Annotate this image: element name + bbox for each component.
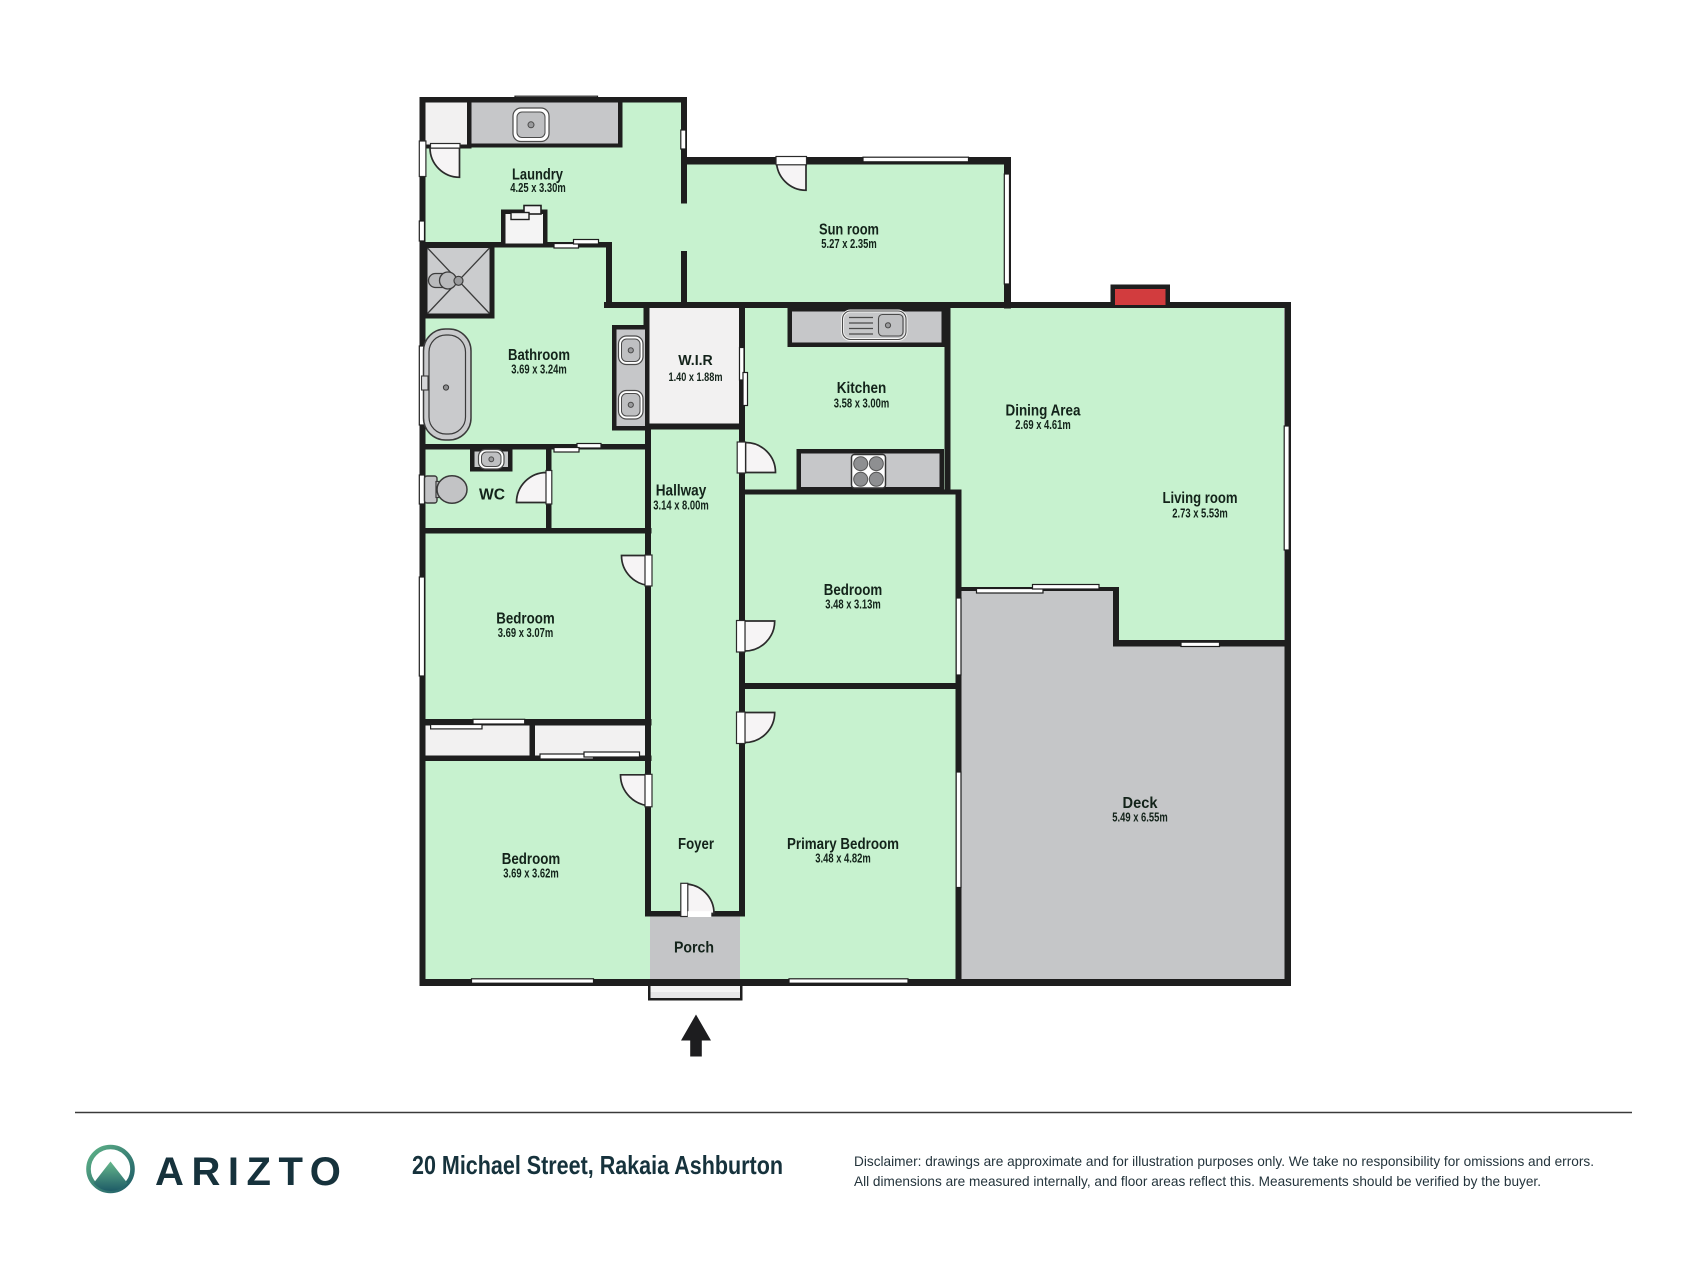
- svg-text:Porch: Porch: [674, 940, 714, 957]
- svg-text:Bathroom: Bathroom: [508, 347, 570, 364]
- svg-text:4.25 x 3.30m: 4.25 x 3.30m: [510, 181, 566, 195]
- svg-text:Sun room: Sun room: [819, 222, 879, 239]
- svg-text:Dining Area: Dining Area: [1006, 403, 1081, 420]
- svg-text:Bedroom: Bedroom: [502, 851, 561, 868]
- svg-text:Bedroom: Bedroom: [496, 611, 555, 628]
- svg-text:Foyer: Foyer: [678, 836, 714, 853]
- svg-text:ARIZTO: ARIZTO: [155, 1150, 349, 1194]
- svg-text:3.69 x 3.24m: 3.69 x 3.24m: [511, 363, 567, 377]
- svg-text:3.48 x 4.82m: 3.48 x 4.82m: [815, 852, 871, 866]
- svg-text:W.I.R: W.I.R: [678, 353, 713, 369]
- svg-text:Primary Bedroom: Primary Bedroom: [787, 836, 899, 853]
- svg-text:Bedroom: Bedroom: [824, 582, 883, 599]
- svg-text:Disclaimer: drawings are appro: Disclaimer: drawings are approximate and…: [854, 1153, 1594, 1169]
- svg-text:3.69 x 3.07m: 3.69 x 3.07m: [498, 626, 554, 640]
- svg-text:3.69 x 3.62m: 3.69 x 3.62m: [503, 867, 559, 881]
- svg-text:2.69 x 4.61m: 2.69 x 4.61m: [1015, 418, 1071, 432]
- svg-text:3.48 x 3.13m: 3.48 x 3.13m: [825, 598, 881, 612]
- svg-text:All dimensions are measured in: All dimensions are measured internally, …: [854, 1173, 1541, 1189]
- svg-text:5.27 x 2.35m: 5.27 x 2.35m: [821, 237, 877, 251]
- svg-text:3.14 x 8.00m: 3.14 x 8.00m: [653, 499, 709, 513]
- svg-text:5.49 x 6.55m: 5.49 x 6.55m: [1112, 811, 1168, 825]
- svg-text:Deck: Deck: [1123, 795, 1158, 812]
- svg-text:Hallway: Hallway: [656, 483, 707, 500]
- svg-text:2.73 x 5.53m: 2.73 x 5.53m: [1172, 507, 1228, 521]
- svg-text:WC: WC: [479, 487, 505, 504]
- svg-text:3.58 x 3.00m: 3.58 x 3.00m: [834, 397, 890, 411]
- svg-text:1.40 x 1.88m: 1.40 x 1.88m: [669, 370, 723, 384]
- svg-text:Kitchen: Kitchen: [837, 380, 887, 397]
- svg-text:Living room: Living room: [1163, 490, 1238, 507]
- svg-text:20 Michael Street, Rakaia Ashb: 20 Michael Street, Rakaia Ashburton: [412, 1150, 783, 1180]
